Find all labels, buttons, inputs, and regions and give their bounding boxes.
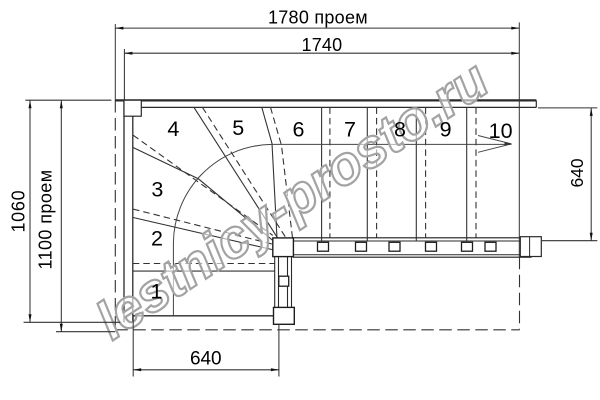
- svg-text:7: 7: [344, 118, 356, 142]
- svg-text:1: 1: [151, 280, 163, 304]
- svg-text:10: 10: [489, 119, 513, 143]
- svg-text:5: 5: [232, 116, 244, 140]
- svg-text:3: 3: [151, 178, 163, 202]
- svg-text:8: 8: [394, 118, 406, 142]
- svg-text:1060: 1060: [9, 190, 29, 233]
- svg-text:4: 4: [167, 117, 179, 141]
- svg-text:1740: 1740: [302, 35, 343, 55]
- svg-text:2: 2: [151, 227, 163, 251]
- svg-text:1780 проем: 1780 проем: [268, 8, 368, 28]
- svg-text:6: 6: [293, 118, 305, 142]
- svg-text:9: 9: [440, 118, 452, 142]
- svg-text:640: 640: [190, 349, 222, 370]
- svg-text:1100 проем: 1100 проем: [36, 170, 56, 270]
- svg-text:lestnicy-prosto.ru: lestnicy-prosto.ru: [86, 49, 499, 351]
- svg-text:640: 640: [567, 158, 587, 188]
